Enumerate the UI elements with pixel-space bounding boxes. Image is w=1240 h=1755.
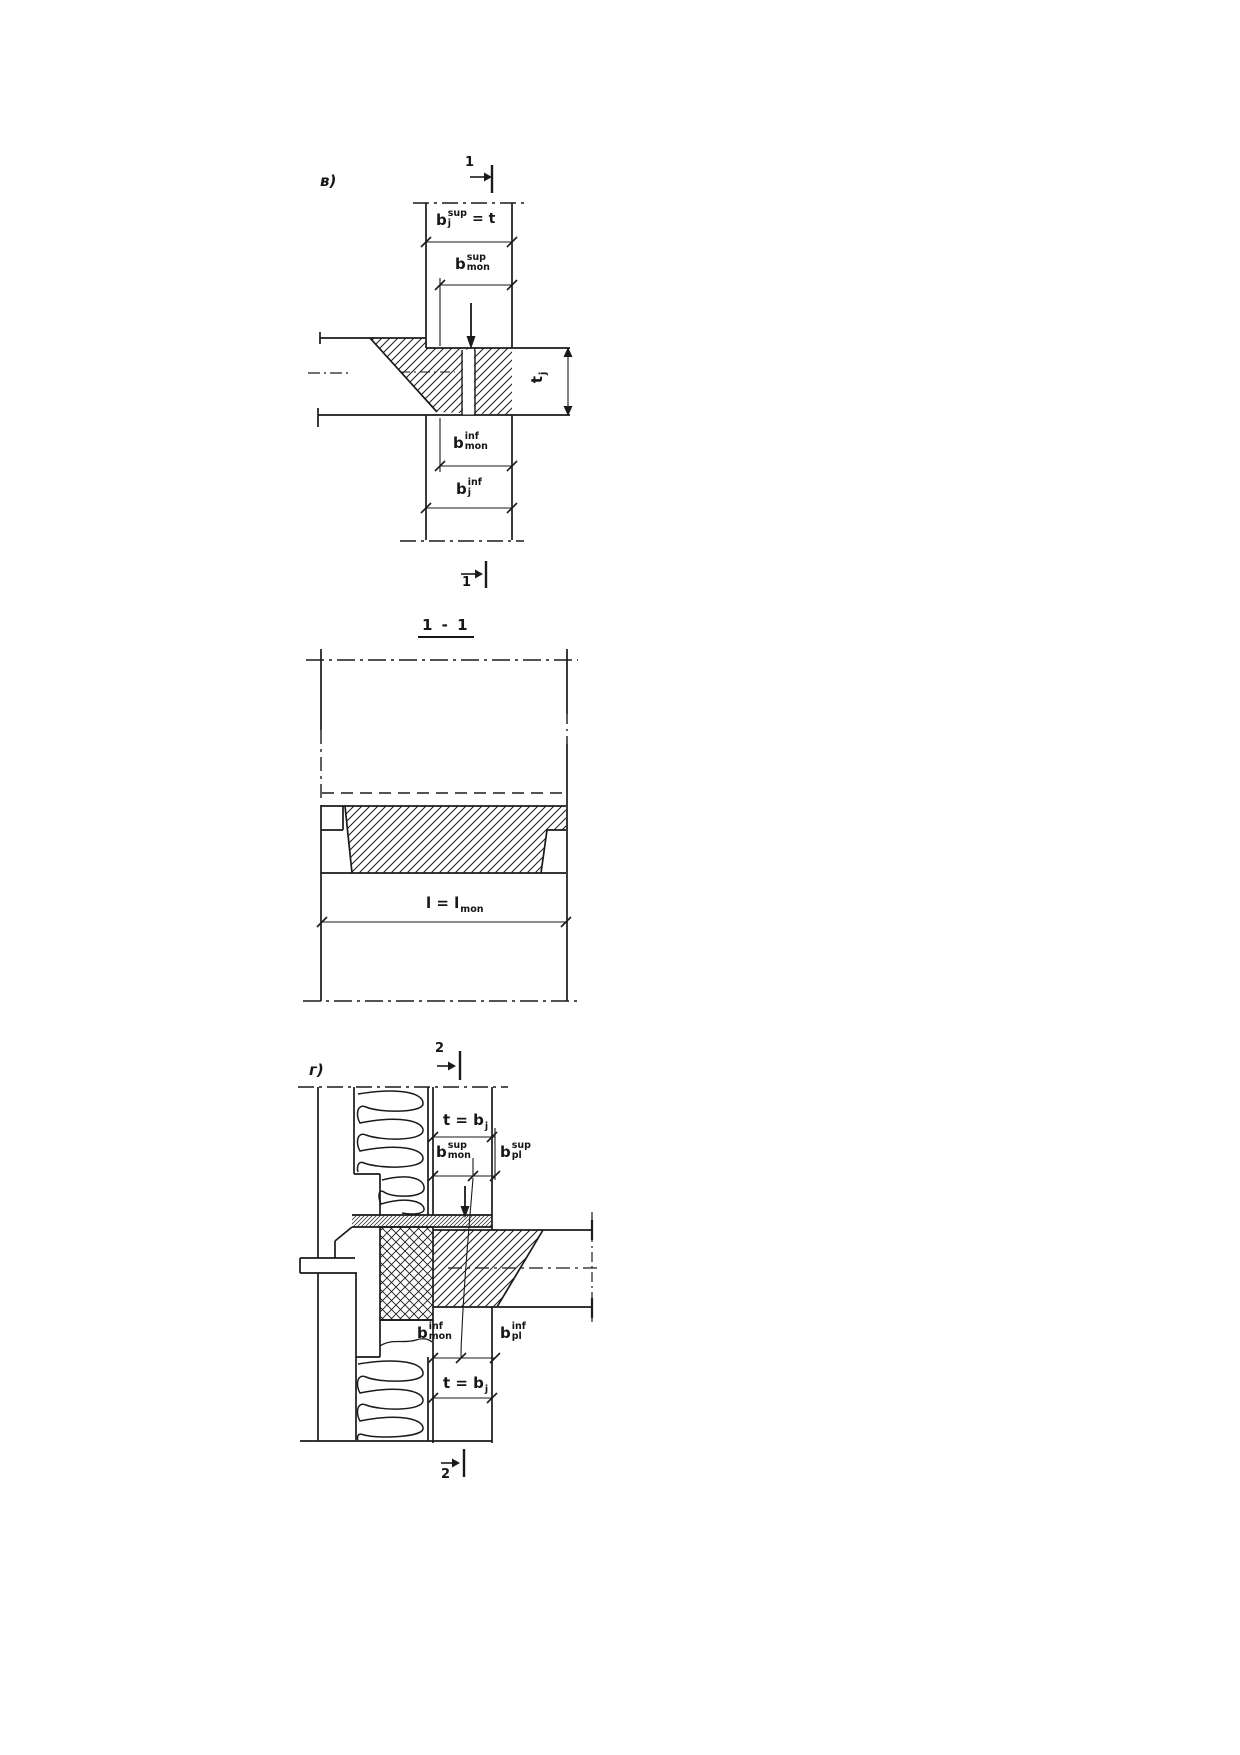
scanned-drawing-page: в) 1 bsupj= t bsupmon tj binfmon binfj 1… xyxy=(0,0,1240,1755)
insulation-lower xyxy=(358,1361,424,1440)
insulation-upper-narrow xyxy=(379,1177,424,1214)
panel-plan-hatch xyxy=(321,806,566,873)
dim-label-bmon-inf-a: binfmon xyxy=(453,432,488,453)
dim-label-bpl-inf: binfpl xyxy=(500,1322,526,1343)
dim-label-bmon-sup-a: bsupmon xyxy=(455,253,490,274)
dim-label-tj: tj xyxy=(529,372,544,383)
section-title-1-1: 1 - 1 xyxy=(418,618,474,638)
insulation-upper xyxy=(358,1091,424,1172)
dim-label-bmon-sup-c: bsupmon xyxy=(436,1141,471,1162)
section-number-2-top: 2 xyxy=(435,1042,444,1055)
dim-label-t-bj-top: t = bj xyxy=(443,1112,488,1127)
panel-letter-bottom: г) xyxy=(309,1063,324,1078)
dim-label-bj-inf: binfj xyxy=(456,478,482,499)
dim-label-bmon-inf-c: binfmon xyxy=(417,1322,452,1343)
section-number-1-bottom: 1 xyxy=(462,576,471,589)
monolith-block xyxy=(380,1227,433,1320)
dim-label-l-lmon: l = lmon xyxy=(426,895,484,910)
technical-drawing xyxy=(0,0,1240,1755)
diagram-b-linework xyxy=(303,649,578,1001)
panel-letter-text: в) xyxy=(320,174,336,189)
dim-label-bpl-sup: bsuppl xyxy=(500,1141,531,1162)
load-arrow-top xyxy=(467,303,476,349)
diagram-b-dimensions xyxy=(317,917,571,927)
facade-joint-step xyxy=(300,1258,357,1273)
floor-slab xyxy=(433,1212,598,1325)
dim-label-bj-sup: bsupj= t xyxy=(436,209,495,230)
load-arrow-bottom-diagram xyxy=(461,1186,470,1218)
section-number-1-top: 1 xyxy=(465,156,474,169)
section-number-2-bottom: 2 xyxy=(441,1468,450,1481)
panel-letter-top: в) xyxy=(320,174,336,189)
dim-label-t-bj-bottom: t = bj xyxy=(443,1375,488,1390)
